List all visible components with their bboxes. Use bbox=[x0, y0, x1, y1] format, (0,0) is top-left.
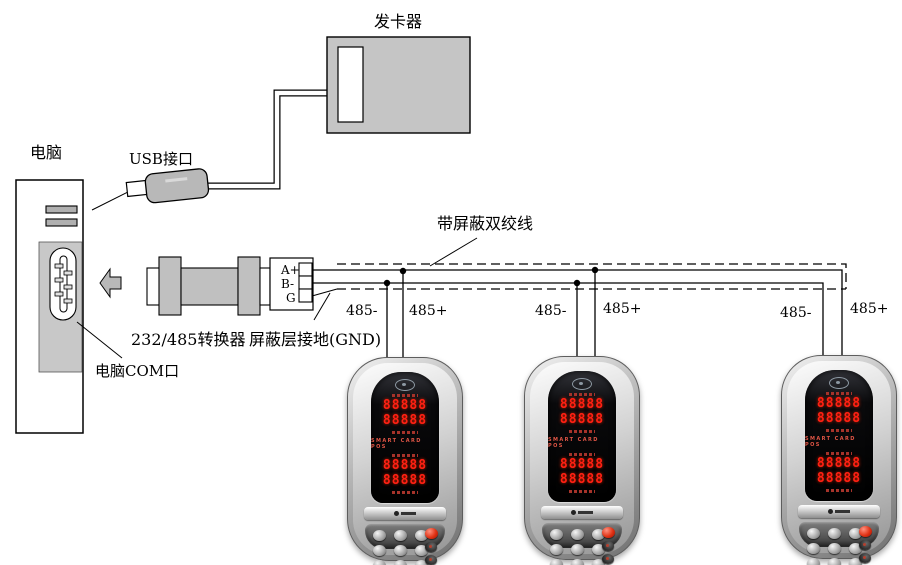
usb-cable bbox=[206, 93, 329, 186]
computer-tower bbox=[16, 180, 83, 433]
label-pin-a-plus: A+ bbox=[281, 263, 300, 277]
display-caption-marks bbox=[826, 429, 852, 432]
display-caption-marks bbox=[569, 430, 595, 433]
keypad-key bbox=[373, 560, 386, 565]
keypad-key bbox=[571, 529, 584, 540]
pos-terminal-3: 88888 88888 SMART CARD POS 88888 88888 bbox=[781, 355, 897, 559]
usb-leader-line bbox=[92, 192, 128, 210]
function-key-dark bbox=[602, 541, 614, 551]
led-row-4: 88888 bbox=[383, 473, 427, 488]
keypad-key bbox=[373, 530, 386, 541]
junction-dot bbox=[592, 267, 598, 273]
device-face: 88888 88888 SMART CARD POS 88888 88888 bbox=[787, 361, 891, 553]
display-caption-marks bbox=[569, 490, 595, 493]
device-display: 88888 88888 SMART CARD POS 88888 88888 bbox=[371, 372, 439, 503]
terminal-a-plus bbox=[299, 263, 312, 276]
display-caption-marks bbox=[826, 489, 852, 492]
converter-232-485 bbox=[147, 257, 270, 315]
display-caption-marks bbox=[826, 452, 852, 455]
led-row-1: 88888 bbox=[560, 397, 604, 412]
keypad-key bbox=[550, 529, 563, 540]
display-caption-marks bbox=[392, 454, 418, 457]
label-computer: 电脑 bbox=[30, 139, 62, 163]
junction-dot bbox=[574, 280, 580, 286]
keypad-key bbox=[550, 544, 563, 555]
label-pin-b-minus: B- bbox=[281, 277, 294, 291]
gnd-leader-line bbox=[314, 293, 330, 320]
keypad-side-column bbox=[857, 526, 873, 565]
com-port bbox=[50, 248, 76, 320]
function-key-dark bbox=[602, 554, 614, 564]
label-drop1-minus: 485- bbox=[346, 303, 377, 319]
keypad-side-column bbox=[423, 528, 439, 565]
keypad-key bbox=[807, 558, 820, 565]
led-row-2: 88888 bbox=[383, 413, 427, 428]
shield-top-wire bbox=[337, 264, 846, 289]
display-caption-marks bbox=[392, 491, 418, 494]
device-brand-text: SMART CARD POS bbox=[371, 438, 439, 450]
device-brand-text: SMART CARD POS bbox=[548, 437, 616, 449]
label-shield-ground: 屏蔽层接地(GND) bbox=[249, 326, 381, 350]
shield-ground-wire bbox=[312, 289, 337, 296]
function-key-red bbox=[602, 527, 615, 538]
label-drop3-minus: 485- bbox=[780, 305, 811, 321]
keypad-key bbox=[828, 528, 841, 539]
keypad-key bbox=[571, 544, 584, 555]
led-row-3: 88888 bbox=[817, 456, 861, 471]
label-card-issuer: 发卡器 bbox=[374, 8, 422, 32]
device-body: 88888 88888 SMART CARD POS 88888 88888 bbox=[781, 355, 897, 559]
function-key-red bbox=[859, 526, 872, 537]
label-usb-port: USB接口 bbox=[129, 148, 193, 169]
function-key-red bbox=[425, 528, 438, 539]
device-logo-icon bbox=[572, 378, 592, 390]
function-key-dark bbox=[859, 540, 871, 550]
led-row-3: 88888 bbox=[560, 457, 604, 472]
card-issuer-box bbox=[327, 37, 470, 133]
junction-dot bbox=[400, 268, 406, 274]
label-drop2-minus: 485- bbox=[535, 303, 566, 319]
device-brand-text: SMART CARD POS bbox=[805, 436, 873, 448]
device-keypad bbox=[799, 522, 879, 547]
device-brand-band bbox=[798, 505, 880, 518]
led-row-1: 88888 bbox=[817, 396, 861, 411]
band-logo-icon bbox=[394, 511, 399, 516]
pos-terminal-1: 88888 88888 SMART CARD POS 88888 88888 bbox=[347, 357, 463, 561]
function-key-dark bbox=[425, 542, 437, 552]
junction-dot bbox=[384, 280, 390, 286]
display-caption-marks bbox=[569, 453, 595, 456]
band-logo-icon bbox=[828, 509, 833, 514]
led-row-2: 88888 bbox=[817, 411, 861, 426]
left-arrow-icon bbox=[100, 269, 121, 297]
display-caption-marks bbox=[392, 431, 418, 434]
led-row-4: 88888 bbox=[560, 472, 604, 487]
device-body: 88888 88888 SMART CARD POS 88888 88888 bbox=[347, 357, 463, 561]
label-drop2-plus: 485+ bbox=[603, 301, 641, 317]
display-caption-marks bbox=[392, 394, 418, 397]
keypad-key bbox=[394, 530, 407, 541]
led-row-2: 88888 bbox=[560, 412, 604, 427]
band-logo-text bbox=[835, 510, 850, 513]
display-caption-marks bbox=[826, 392, 852, 395]
band-logo-text bbox=[578, 511, 593, 514]
keypad-side-column bbox=[600, 527, 616, 565]
terminal-b-minus bbox=[299, 276, 312, 289]
device-body: 88888 88888 SMART CARD POS 88888 88888 bbox=[524, 356, 640, 560]
device-logo-icon bbox=[395, 379, 415, 391]
band-logo-text bbox=[401, 512, 416, 515]
card-slot bbox=[338, 47, 363, 122]
led-row-4: 88888 bbox=[817, 471, 861, 486]
usb-slot-1 bbox=[46, 206, 77, 213]
keypad-grid bbox=[806, 528, 863, 565]
device-face: 88888 88888 SMART CARD POS 88888 88888 bbox=[353, 363, 457, 555]
keypad-key bbox=[828, 558, 841, 565]
label-drop1-plus: 485+ bbox=[409, 303, 447, 319]
keypad-grid bbox=[549, 529, 606, 565]
device-keypad bbox=[365, 524, 445, 549]
display-caption-marks bbox=[569, 393, 595, 396]
usb-slot-2 bbox=[46, 219, 77, 226]
device-logo-icon bbox=[829, 377, 849, 389]
device-face: 88888 88888 SMART CARD POS 88888 88888 bbox=[530, 362, 634, 554]
label-converter: 232/485转换器 bbox=[131, 326, 245, 350]
keypad-key bbox=[550, 559, 563, 565]
keypad-key bbox=[394, 545, 407, 556]
label-drop3-plus: 485+ bbox=[850, 301, 888, 317]
keypad-grid bbox=[372, 530, 429, 565]
keypad-key bbox=[373, 545, 386, 556]
label-pin-g: G bbox=[286, 291, 296, 305]
device-display: 88888 88888 SMART CARD POS 88888 88888 bbox=[805, 370, 873, 501]
led-row-3: 88888 bbox=[383, 458, 427, 473]
function-key-dark bbox=[859, 553, 871, 563]
device-display: 88888 88888 SMART CARD POS 88888 88888 bbox=[548, 371, 616, 502]
keypad-key bbox=[807, 528, 820, 539]
terminal-g bbox=[299, 289, 312, 302]
twisted-pair-leader-line bbox=[430, 238, 477, 266]
device-keypad bbox=[542, 523, 622, 548]
device-brand-band bbox=[541, 506, 623, 519]
keypad-key bbox=[828, 543, 841, 554]
pos-terminal-2: 88888 88888 SMART CARD POS 88888 88888 bbox=[524, 356, 640, 560]
keypad-key bbox=[571, 559, 584, 565]
label-computer-com: 电脑COM口 bbox=[95, 360, 179, 381]
keypad-key bbox=[807, 543, 820, 554]
led-row-1: 88888 bbox=[383, 398, 427, 413]
usb-connector bbox=[126, 168, 210, 205]
band-logo-icon bbox=[571, 510, 576, 515]
label-twisted-pair: 带屏蔽双绞线 bbox=[437, 210, 533, 234]
wiring-diagram: 发卡器 电脑 USB接口 带屏蔽双绞线 232/485转换器 屏蔽层接地(GND… bbox=[0, 0, 902, 565]
function-key-dark bbox=[425, 555, 437, 565]
keypad-key bbox=[394, 560, 407, 565]
device-brand-band bbox=[364, 507, 446, 520]
